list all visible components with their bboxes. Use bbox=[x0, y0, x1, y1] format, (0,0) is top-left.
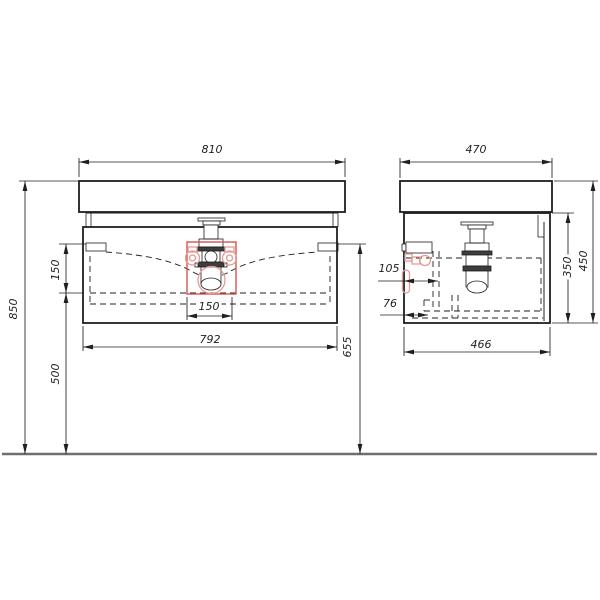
dim-label-overall-height-850: 850 bbox=[8, 297, 20, 322]
side-mounting-bracket bbox=[402, 242, 432, 253]
side-siphon bbox=[461, 222, 493, 293]
dim-label-bracket-to-drawer-150: 150 bbox=[50, 258, 62, 283]
dim-label-side-overall-height-450: 450 bbox=[578, 249, 590, 274]
dim-label-drawer-to-floor-500: 500 bbox=[50, 362, 62, 387]
dim-label-body-width-792: 792 bbox=[198, 334, 223, 346]
dim-label-body-height-350: 350 bbox=[562, 255, 574, 280]
dim-label-top-width-810: 810 bbox=[200, 144, 225, 156]
drawing-geometry bbox=[0, 0, 600, 600]
side-view bbox=[400, 181, 552, 323]
technical-drawing-canvas: 810 470 850 150 500 655 150 792 105 76 4… bbox=[0, 0, 600, 600]
dim-label-supply-offset-105: 105 bbox=[377, 263, 402, 275]
side-wall-connections-highlight bbox=[403, 254, 431, 293]
dim-label-cutout-width-150: 150 bbox=[197, 301, 222, 313]
dim-label-bracket-to-floor-655: 655 bbox=[342, 335, 354, 360]
dim-label-top-depth-470: 470 bbox=[464, 144, 489, 156]
front-siphon bbox=[195, 218, 227, 290]
side-washbasin bbox=[400, 181, 552, 212]
dim-label-drain-offset-76: 76 bbox=[381, 298, 399, 310]
dim-label-body-depth-466: 466 bbox=[469, 339, 494, 351]
